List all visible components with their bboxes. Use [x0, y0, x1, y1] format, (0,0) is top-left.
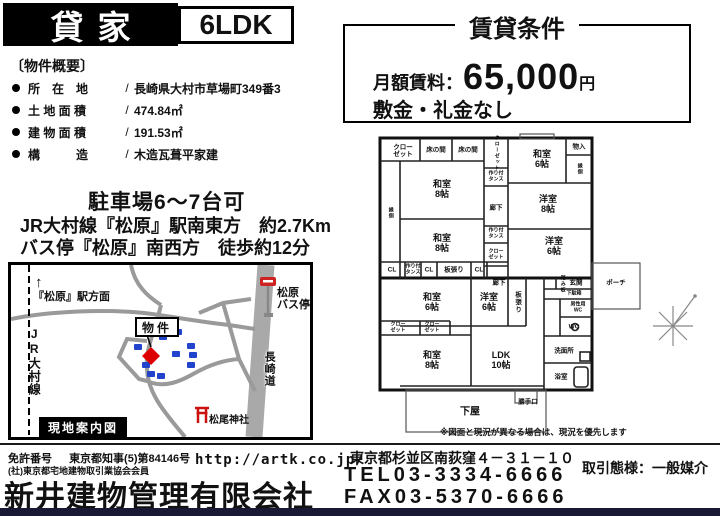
- room-label-closet-tl: クロー ゼット: [393, 144, 413, 158]
- overview-row-land-area: 土 地 面 積 / 474.84㎡: [12, 102, 183, 118]
- room-label-itabari2: 板張り: [513, 291, 520, 314]
- deposit-note: 敷金・礼金なし: [373, 94, 513, 123]
- bottom-strip: [0, 508, 720, 516]
- sale-type-banner: 貸家: [3, 3, 178, 46]
- overview-value: 木造瓦葺平家建: [134, 146, 218, 163]
- floor-plan-walls: [376, 131, 644, 433]
- room-label-mens-wc: 男性用 WC: [570, 303, 585, 314]
- overview-title: 〔物件概要〕: [10, 56, 94, 76]
- phone-number: TEL03-3334-6666: [344, 464, 566, 487]
- rent-amount: 65,000: [463, 56, 579, 98]
- room-label-tokonoma2: 床の間: [458, 146, 478, 153]
- room-label-senmenjo: 洗面所: [554, 347, 574, 354]
- overview-value: 191.53㎡: [134, 124, 183, 141]
- room-label-cl2: CL: [425, 266, 434, 273]
- station-direction-label: 『松原』駅方面: [33, 291, 110, 303]
- room-label-getabako: 下駄箱: [566, 291, 581, 297]
- room-label-engawa-right: 縁側: [576, 163, 582, 175]
- room-label-wc: WC: [569, 323, 580, 330]
- bus-stop-label: 松原 バス停: [277, 287, 310, 311]
- location-map: ↑ 『松原』駅方面 JR大村線 松原 バス停 物件 長崎道 松尾神社 現地案内図: [8, 262, 313, 440]
- torii-icon: [195, 408, 209, 423]
- website-url[interactable]: http://artk.co.jp/: [195, 452, 365, 468]
- overview-separator: /: [120, 103, 134, 117]
- room-label-washitsu6-b: 和室 6帖: [423, 293, 441, 313]
- room-label-yoshitsu6-right: 洋室 6帖: [545, 237, 563, 257]
- room-label-tansu1: 作り付 タンス: [488, 172, 503, 183]
- room-label-mono-ire: 物入: [573, 143, 586, 150]
- rent-label: 月額賃料：: [373, 69, 463, 95]
- room-label-katteguchi: 勝手口: [518, 398, 538, 405]
- layout-badge: 6LDK: [178, 6, 294, 44]
- overview-separator: /: [120, 147, 134, 161]
- rental-terms-box: 賃貸条件 月額賃料： 65,000 円 敷金・礼金なし: [343, 24, 691, 123]
- rail-line-label: JR大村線: [27, 327, 40, 396]
- floor-plan-note: ※図面と現況が異なる場合は、現況を優先します: [440, 426, 627, 438]
- room-label-tansu2: 作り付 タンス: [488, 229, 503, 240]
- room-label-ldk: LDK 10帖: [491, 351, 510, 371]
- sale-type-label: 貸家: [51, 1, 145, 49]
- compass-icon: [645, 292, 701, 354]
- room-label-fumiita: 踏み板: [559, 275, 565, 293]
- room-label-rouka2: 廊下: [493, 279, 506, 286]
- station-arrow-icon: ↑: [35, 275, 43, 292]
- overview-row-location: 所 在 地 / 長崎県大村市草場町349番3: [12, 80, 281, 96]
- room-label-rouka1: 廊下: [490, 204, 503, 211]
- map-caption: 現地案内図: [48, 419, 118, 436]
- room-label-engawa-left: 縁側: [387, 207, 393, 219]
- floor-plan: クロー ゼット 床の間 床の間 和室 8帖 和室 8帖 クローゼット 作り付 タ…: [376, 131, 644, 433]
- room-label-closet-v1: クローゼット: [493, 135, 499, 171]
- expressway-label: 長崎道: [263, 351, 275, 387]
- overview-label: 所 在 地: [28, 80, 120, 97]
- room-label-tansu3: 作り付 タンス: [405, 265, 420, 276]
- room-label-tokonoma1: 床の間: [426, 146, 446, 153]
- map-caption-box: 現地案内図: [39, 417, 127, 437]
- monthly-rent-row: 月額賃料： 65,000 円: [373, 56, 595, 98]
- room-label-itabari1: 板張り: [444, 266, 464, 273]
- room-label-yoshitsu8: 洋室 8帖: [539, 195, 557, 215]
- overview-label: 建 物 面 積: [28, 124, 120, 141]
- room-label-porch: ポーチ: [606, 279, 626, 286]
- rent-unit: 円: [579, 70, 595, 94]
- fax-number: FAX03-5370-6666: [344, 486, 567, 509]
- room-label-cl1: CL: [388, 266, 397, 273]
- bullet-icon: [12, 150, 20, 158]
- room-label-closet-b1: クロー ゼット: [390, 323, 405, 334]
- transaction-type: 取引態様：一般媒介: [582, 458, 708, 478]
- overview-value: 474.84㎡: [134, 102, 183, 119]
- overview-value: 長崎県大村市草場町349番3: [134, 80, 281, 97]
- room-label-genkan: 玄関: [570, 279, 583, 286]
- room-label-closet-b2: クロー ゼット: [424, 323, 439, 334]
- footer-divider: [0, 443, 720, 445]
- overview-separator: /: [120, 81, 134, 95]
- room-label-washitsu8-3: 和室 8帖: [423, 351, 441, 371]
- shrine-label: 松尾神社: [209, 415, 249, 426]
- rental-terms-title: 賃貸条件: [455, 9, 579, 44]
- room-label-washitsu6-top: 和室 6帖: [533, 150, 551, 170]
- room-label-washitsu8-2: 和室 8帖: [433, 234, 451, 254]
- overview-label: 土 地 面 積: [28, 102, 120, 119]
- bullet-icon: [12, 128, 20, 136]
- property-label-box: 物件: [135, 317, 179, 337]
- room-label-yokushitsu: 浴室: [555, 373, 568, 380]
- access-bus: バス停『松原』南西方 徒歩約12分: [20, 234, 310, 260]
- room-label-washitsu8-1: 和室 8帖: [433, 180, 451, 200]
- overview-row-structure: 構 造 / 木造瓦葺平家建: [12, 146, 218, 162]
- layout-label: 6LDK: [199, 9, 272, 41]
- overview-label: 構 造: [28, 146, 120, 163]
- room-label-cl3: CL: [475, 266, 484, 273]
- bullet-icon: [12, 84, 20, 92]
- room-label-geya: 下屋: [460, 407, 480, 418]
- overview-row-building-area: 建 物 面 積 / 191.53㎡: [12, 124, 183, 140]
- room-label-yoshitsu6-b: 洋室 6帖: [480, 293, 498, 313]
- room-label-closet-v2: クロー ゼット: [488, 250, 503, 261]
- bullet-icon: [12, 106, 20, 114]
- property-label: 物件: [142, 319, 172, 336]
- overview-separator: /: [120, 125, 134, 139]
